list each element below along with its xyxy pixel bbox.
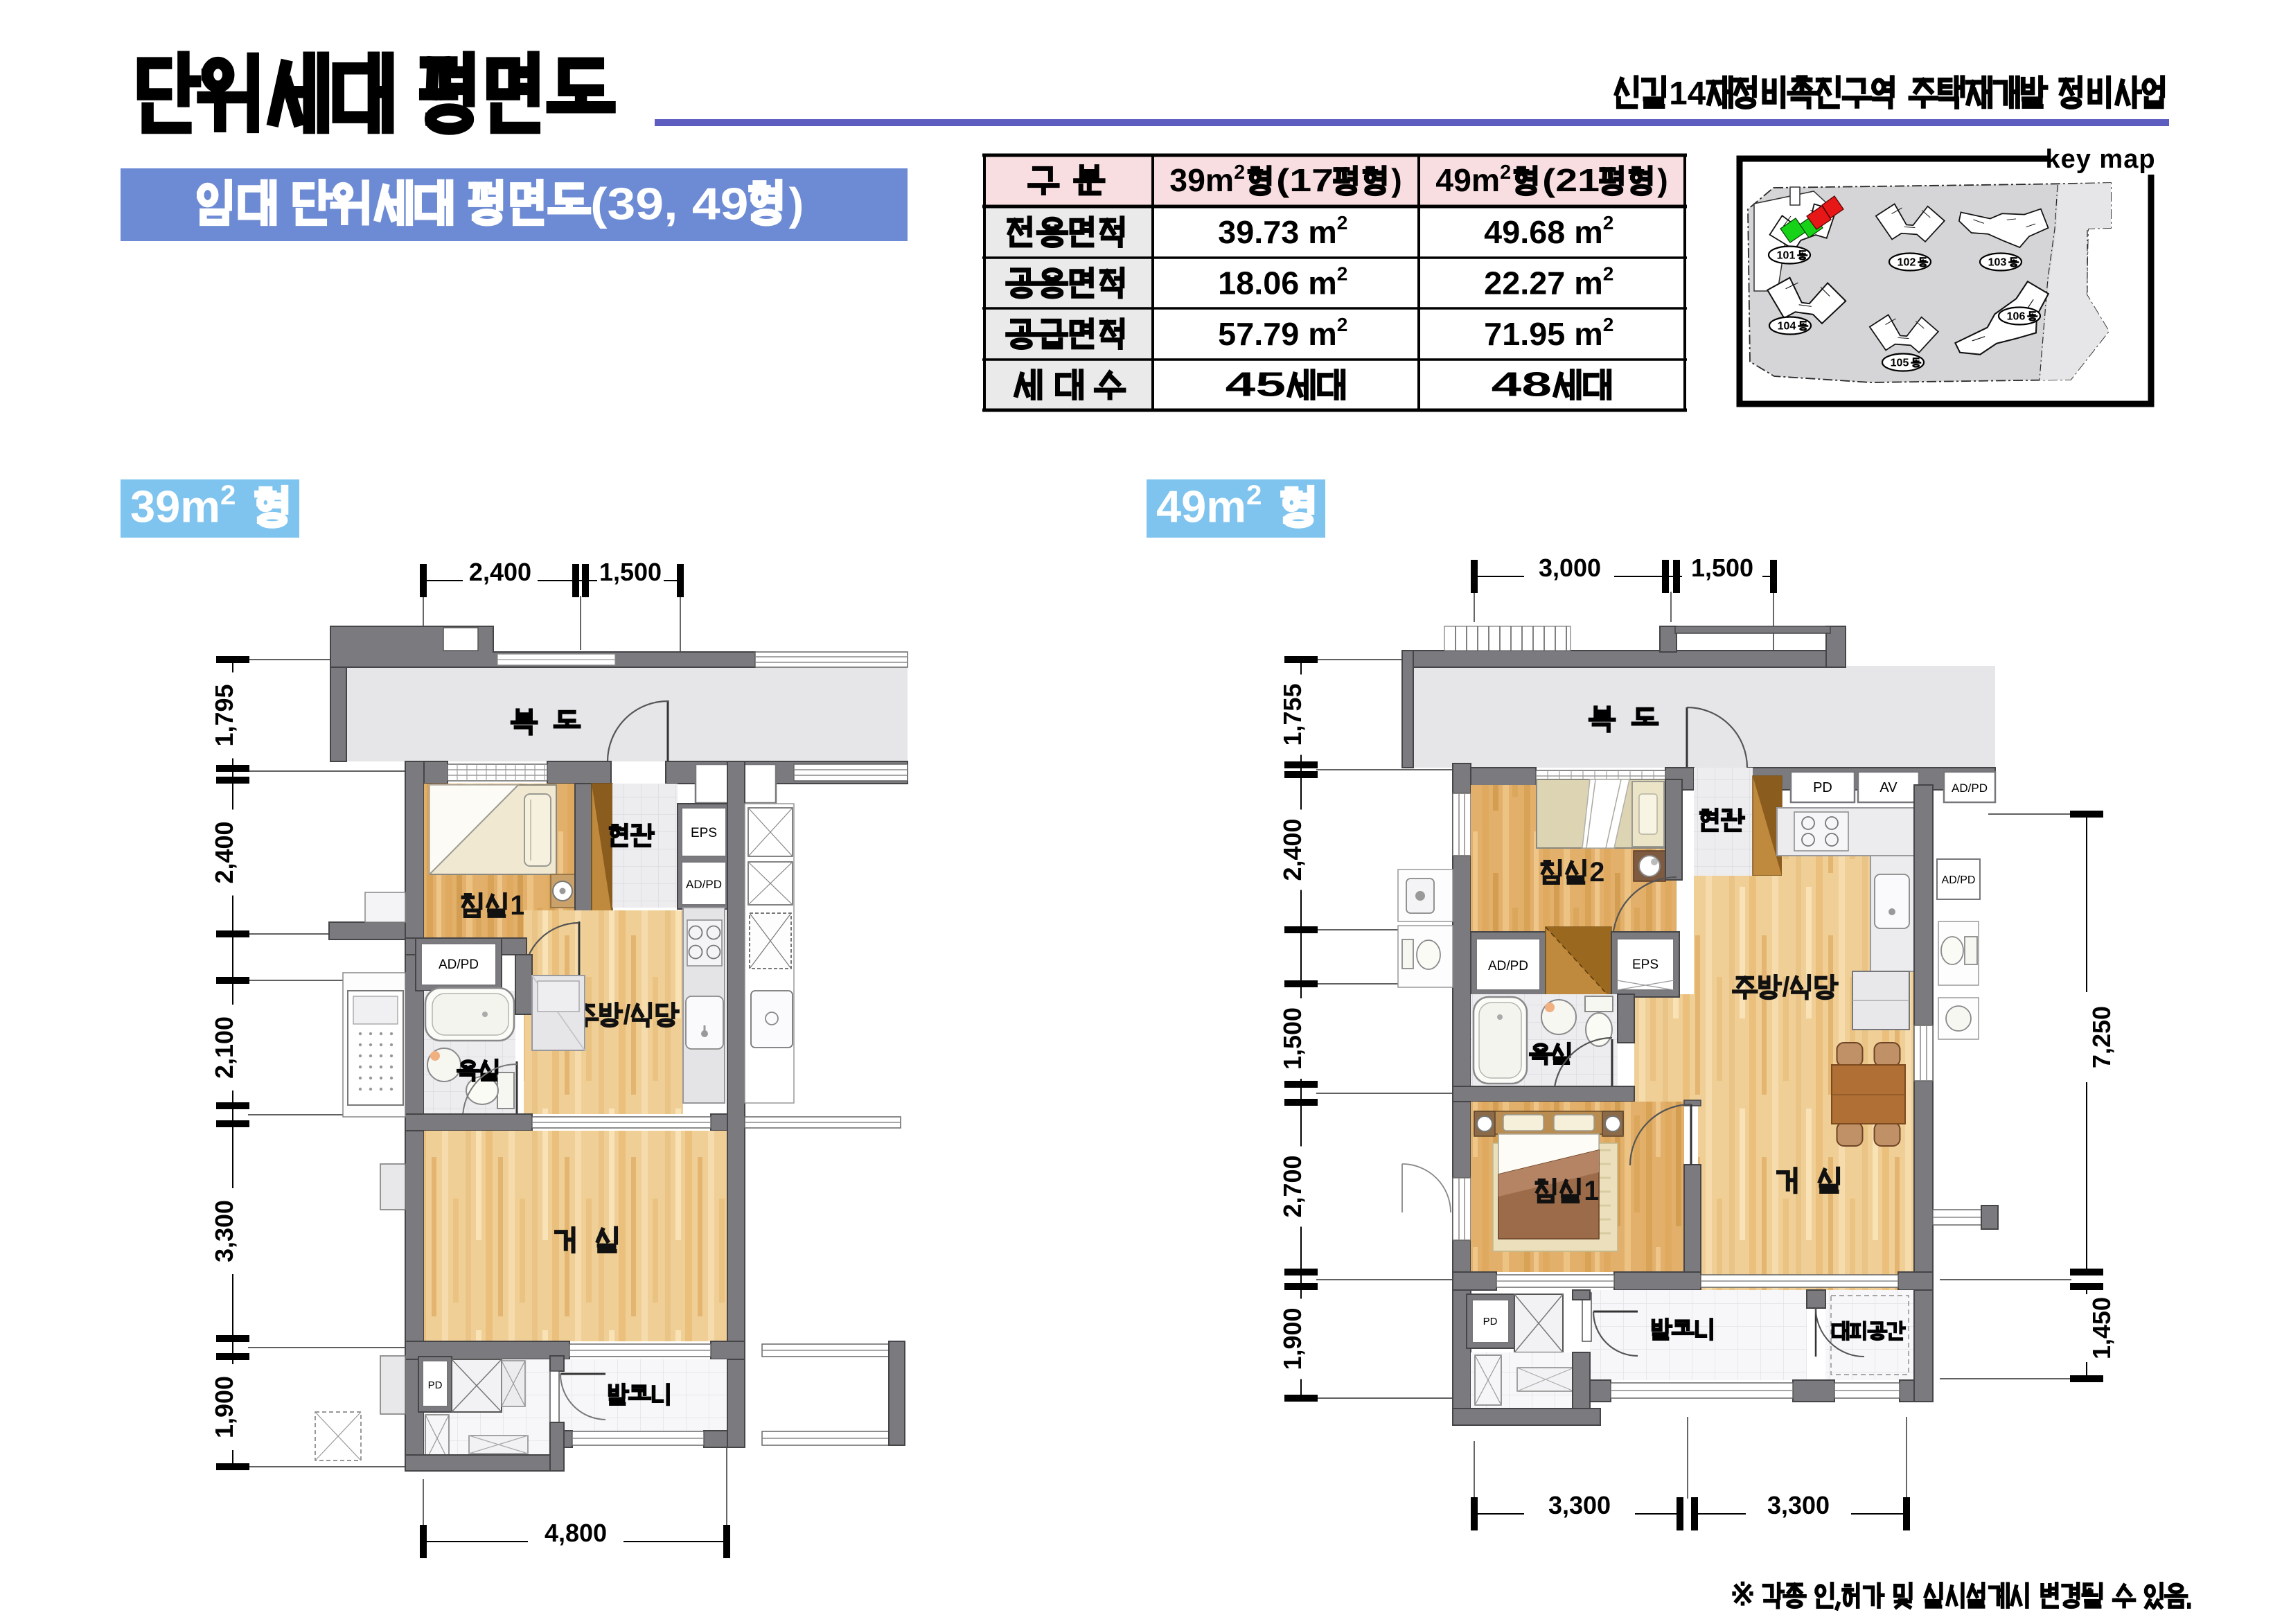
svg-text:39m: 39m	[130, 481, 220, 531]
svg-text:2,700: 2,700	[1278, 1155, 1307, 1217]
svg-text:PD: PD	[1813, 780, 1832, 795]
svg-text:7,250: 7,250	[2087, 1006, 2116, 1068]
svg-text:1,795: 1,795	[210, 684, 238, 746]
svg-text:48: 48	[1492, 367, 1552, 404]
svg-text:2: 2	[1246, 479, 1262, 511]
svg-text:3,300: 3,300	[1767, 1491, 1830, 1519]
svg-text:AD/PD: AD/PD	[686, 878, 722, 891]
svg-text:49.68 m: 49.68 m	[1484, 214, 1603, 250]
svg-text:key map: key map	[2045, 145, 2155, 174]
svg-text:2: 2	[1337, 212, 1348, 233]
svg-text:AD/PD: AD/PD	[1952, 782, 1988, 795]
svg-text:3,300: 3,300	[1548, 1491, 1611, 1519]
svg-text:49m: 49m	[1435, 162, 1500, 198]
svg-text:2: 2	[1603, 314, 1614, 335]
svg-text:/: /	[1783, 972, 1790, 1003]
svg-text:AD/PD: AD/PD	[439, 957, 479, 972]
svg-text:71.95 m: 71.95 m	[1484, 316, 1603, 352]
svg-text:1,500: 1,500	[1691, 554, 1753, 582]
svg-text:45: 45	[1226, 367, 1286, 404]
svg-text:104: 104	[1778, 321, 1796, 333]
svg-text:(39, 49: (39, 49	[590, 179, 748, 229]
svg-text:101: 101	[1777, 250, 1796, 262]
svg-text:(21: (21	[1542, 162, 1600, 198]
svg-text:14: 14	[1669, 76, 1706, 112]
svg-text:2: 2	[220, 479, 236, 511]
svg-text:PD: PD	[1483, 1316, 1498, 1327]
svg-text:): )	[1391, 162, 1402, 198]
svg-text:): )	[789, 179, 804, 229]
svg-text:2: 2	[1603, 263, 1614, 285]
svg-text:57.79 m: 57.79 m	[1218, 316, 1337, 352]
svg-text:2,400: 2,400	[210, 821, 238, 883]
svg-text:105: 105	[1891, 358, 1909, 369]
svg-text:22.27 m: 22.27 m	[1484, 265, 1603, 301]
svg-text:EPS: EPS	[1632, 957, 1658, 972]
svg-text:2,100: 2,100	[210, 1016, 238, 1079]
svg-text:/: /	[623, 1000, 631, 1030]
svg-text:2: 2	[1234, 161, 1245, 184]
svg-text:18.06 m: 18.06 m	[1218, 265, 1337, 301]
svg-text:1: 1	[1584, 1176, 1599, 1206]
svg-text:1,900: 1,900	[1278, 1307, 1307, 1370]
svg-text:(17: (17	[1276, 162, 1334, 198]
svg-text:39.73 m: 39.73 m	[1218, 214, 1337, 250]
svg-text:49m: 49m	[1156, 481, 1246, 531]
svg-text:102: 102	[1898, 257, 1916, 269]
svg-text:PD: PD	[428, 1379, 443, 1391]
svg-text:2: 2	[1337, 263, 1348, 285]
svg-text:2: 2	[1589, 857, 1604, 888]
svg-text:2,400: 2,400	[469, 558, 531, 586]
svg-text:103: 103	[1988, 257, 2007, 269]
svg-text:39m: 39m	[1169, 162, 1234, 198]
svg-text:106: 106	[2007, 311, 2026, 323]
svg-text:2,400: 2,400	[1278, 818, 1307, 881]
svg-text:3,300: 3,300	[210, 1200, 238, 1262]
svg-text:2: 2	[1500, 161, 1511, 184]
svg-text:4,800: 4,800	[545, 1519, 607, 1547]
svg-text:): )	[1657, 162, 1668, 198]
svg-text:1,500: 1,500	[599, 558, 662, 586]
svg-text:AD/PD: AD/PD	[1488, 959, 1528, 973]
svg-text:AD/PD: AD/PD	[1942, 874, 1976, 886]
svg-text:1,755: 1,755	[1278, 683, 1307, 745]
svg-text:1,900: 1,900	[210, 1376, 238, 1438]
svg-text:1,500: 1,500	[1278, 1007, 1307, 1070]
svg-text:3,000: 3,000	[1539, 554, 1601, 582]
svg-text:2: 2	[1603, 212, 1614, 233]
svg-text:EPS: EPS	[691, 826, 717, 840]
svg-text:1,450: 1,450	[2087, 1297, 2116, 1359]
svg-text:2: 2	[1337, 314, 1348, 335]
svg-text:1: 1	[510, 890, 525, 921]
svg-text:AV: AV	[1879, 780, 1898, 795]
